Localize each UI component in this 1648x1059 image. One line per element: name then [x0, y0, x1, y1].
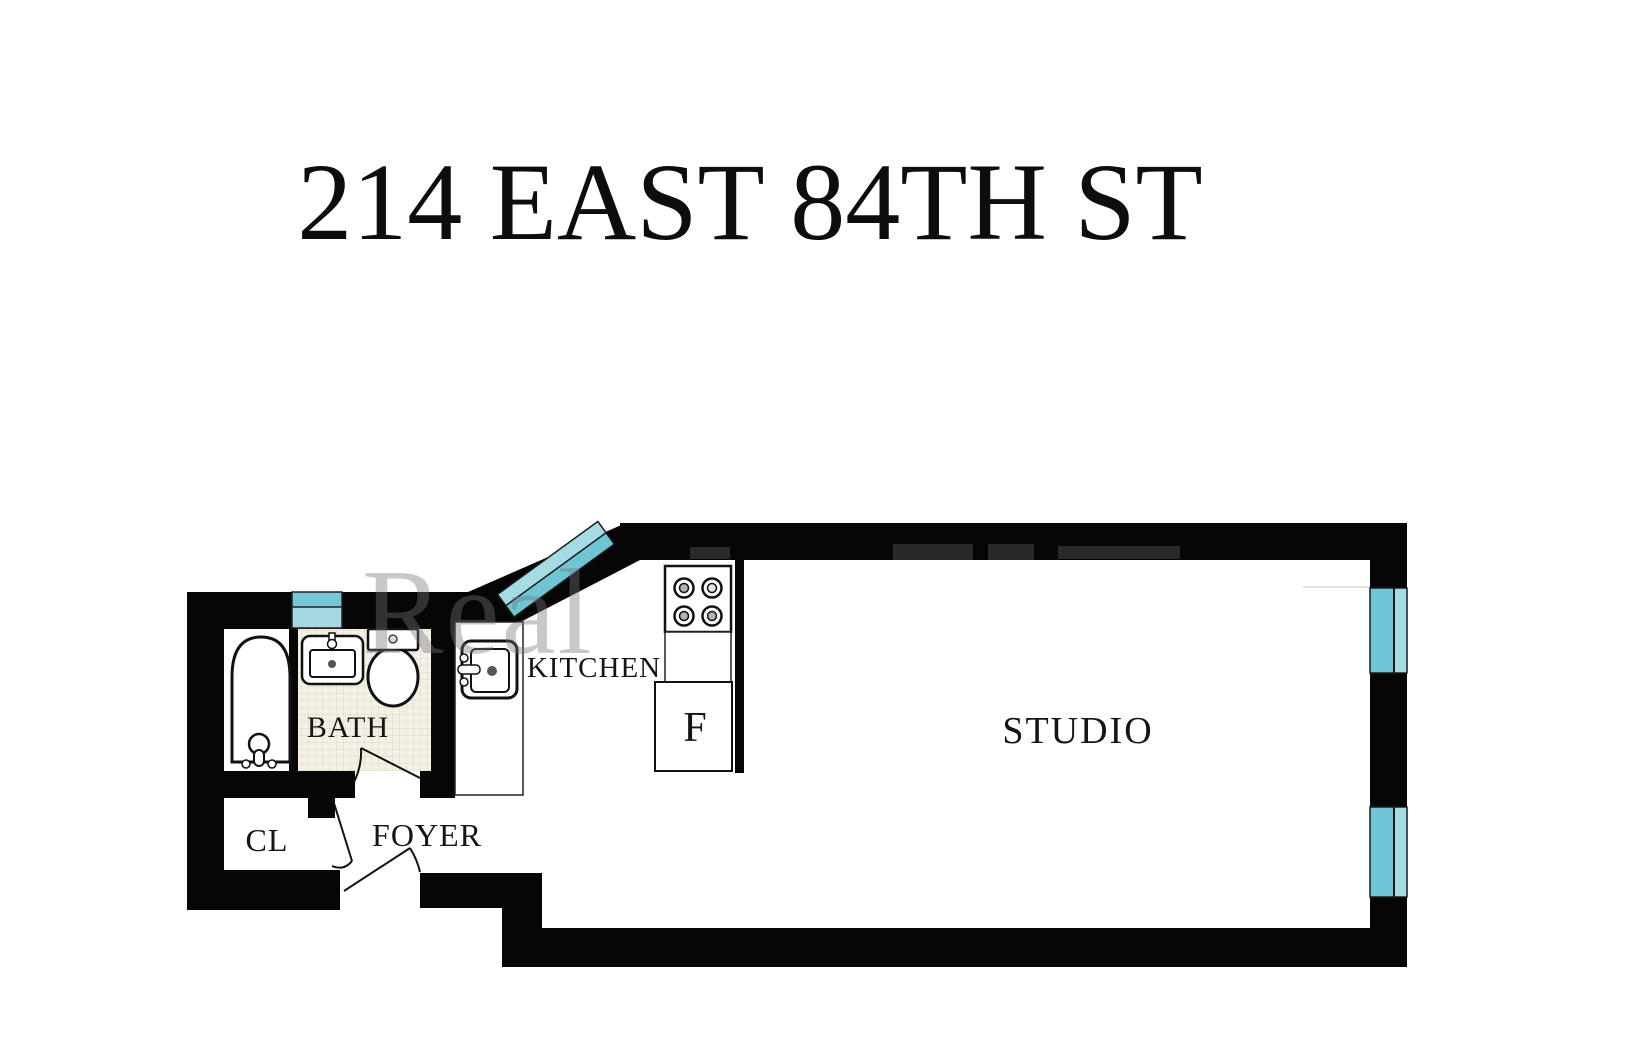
watermark-blotch-4 — [1058, 546, 1180, 559]
wall-closet-bottom — [187, 870, 340, 910]
entry-door — [344, 848, 420, 891]
studio-window-upper-band-dark — [1370, 588, 1393, 673]
closet-label: CL — [246, 822, 289, 858]
watermark-text: Real — [362, 545, 594, 680]
studio-window-lower-band-dark — [1370, 807, 1393, 897]
watermark: Real — [362, 544, 1370, 680]
closet-door-leaf — [333, 800, 352, 861]
kitchen-counter-right — [665, 632, 731, 682]
bath-label: BATH — [307, 711, 389, 744]
bath-window-band-bottom — [292, 607, 342, 628]
floor-plan-page: 214 EAST 84TH ST — [0, 0, 1648, 1059]
watermark-blotch-2 — [893, 544, 973, 560]
studio-window-upper — [1370, 588, 1407, 673]
closet-door-swing-arc — [332, 861, 352, 868]
bath-sink-faucet-head — [328, 640, 337, 649]
floor-plan-svg: BATH — [0, 0, 1648, 1059]
bathtub — [232, 637, 290, 768]
watermark-blotch-1 — [690, 547, 730, 559]
studio-window-lower-band-light — [1395, 807, 1407, 897]
wall-step-connector — [502, 908, 542, 967]
bathtub-foot-right — [268, 760, 276, 768]
wall-left-outer — [187, 592, 224, 910]
studio-window-upper-band-light — [1395, 588, 1407, 673]
wall-bath-bottom-left — [224, 771, 355, 798]
studio-window-lower — [1370, 807, 1407, 897]
studio-label: STUDIO — [1002, 710, 1153, 752]
wall-kitchen-studio — [735, 560, 744, 773]
burner-bl-inner — [680, 612, 689, 621]
burner-tr-inner — [708, 584, 717, 593]
entry-door-leaf — [344, 848, 410, 891]
bathtub-foot-left — [242, 760, 250, 768]
bath-window — [292, 592, 342, 628]
burner-tl-inner — [680, 584, 689, 593]
stove — [665, 566, 731, 632]
bath-sink — [302, 633, 363, 684]
refrigerator: F — [655, 682, 732, 771]
burner-br-inner — [708, 612, 717, 621]
bath-sink-drain — [328, 660, 336, 668]
wall-foyer-bottom — [420, 873, 542, 908]
foyer-label: FOYER — [372, 817, 482, 853]
wall-studio-bottom — [502, 928, 1407, 967]
bathtub-drain-stem — [254, 750, 264, 766]
stove-body — [665, 566, 731, 632]
wall-closet-nub — [308, 798, 335, 818]
bath-window-band-top — [292, 592, 342, 607]
watermark-blotch-3 — [988, 544, 1034, 560]
refrigerator-label: F — [683, 705, 706, 751]
